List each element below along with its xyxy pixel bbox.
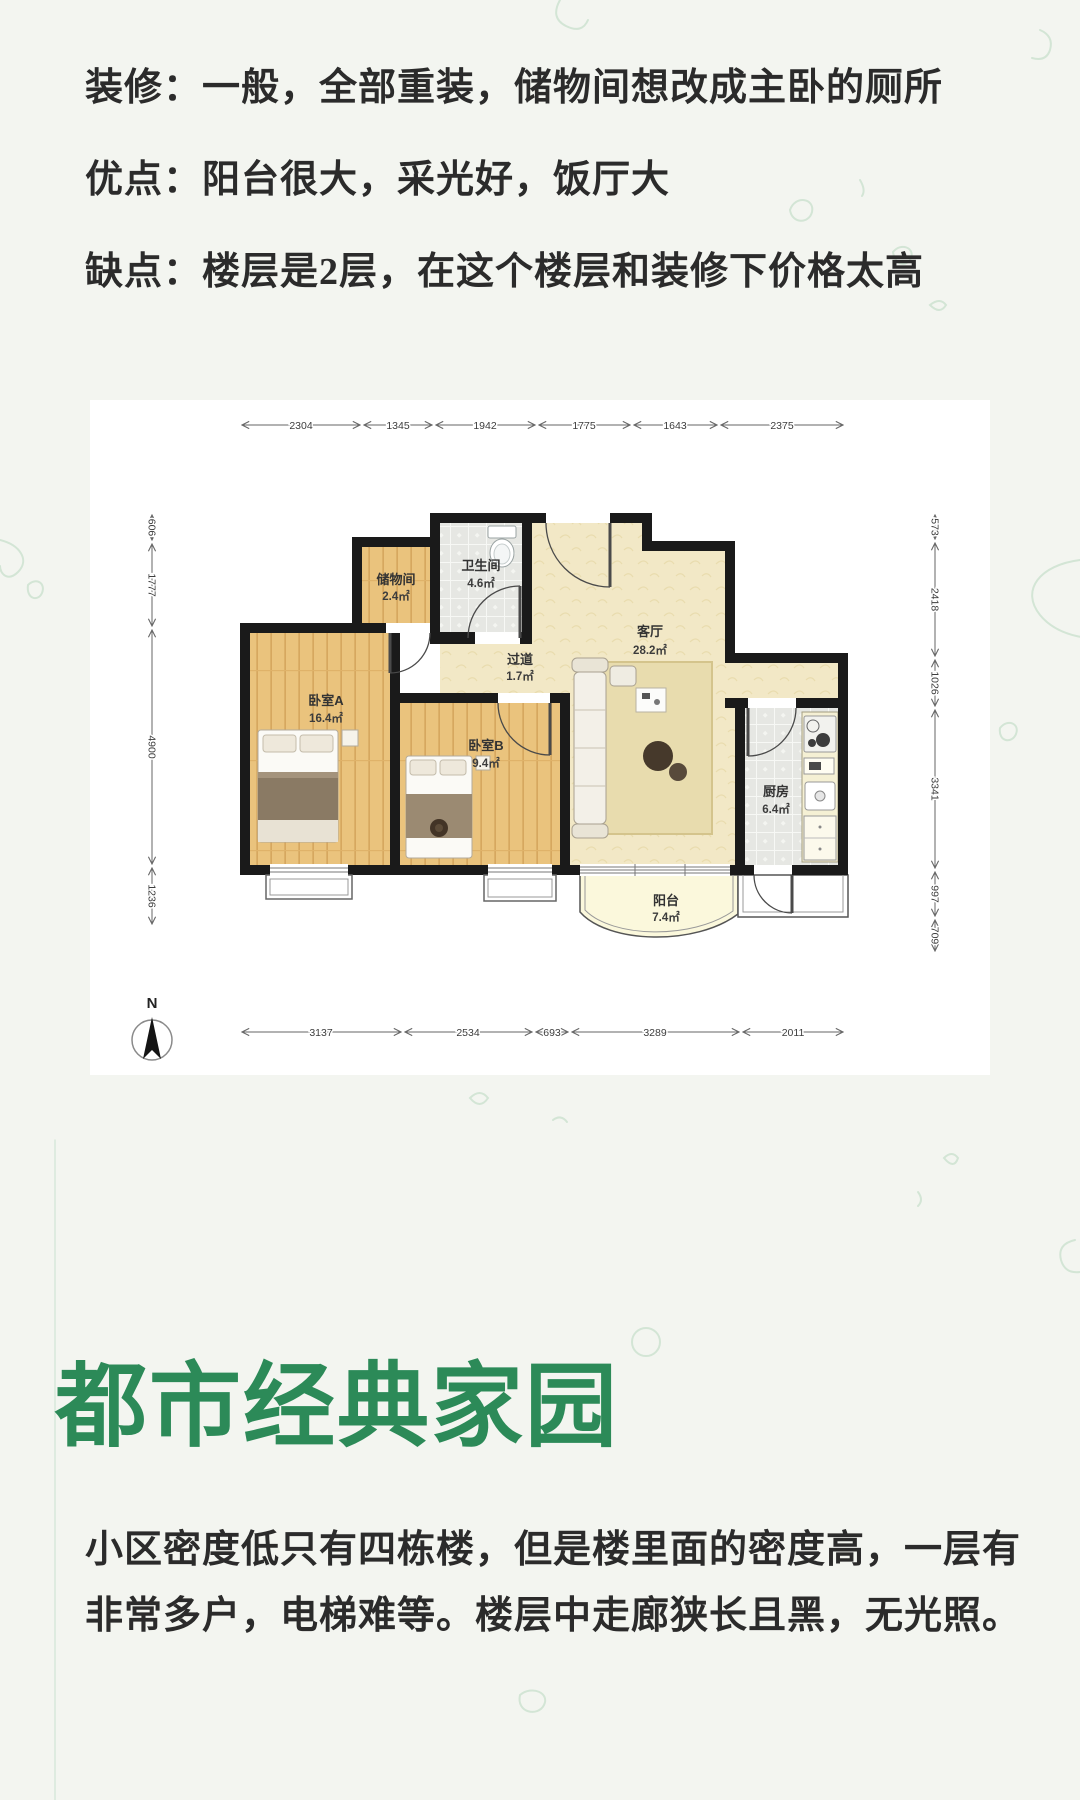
dimensions-right: 573 2418 1026 3341 997 709 <box>929 515 941 951</box>
svg-text:1775: 1775 <box>572 420 596 432</box>
svg-text:3137: 3137 <box>309 1027 333 1039</box>
svg-text:阳台: 阳台 <box>653 893 679 908</box>
svg-text:28.2㎡: 28.2㎡ <box>633 643 667 657</box>
svg-text:N: N <box>147 995 158 1012</box>
svg-text:1643: 1643 <box>663 420 687 432</box>
community-review-line-1: 小区密度低只有四栋楼，但是楼里面的密度高，一层有 <box>85 1518 1021 1573</box>
svg-text:2375: 2375 <box>770 420 794 432</box>
svg-text:1.7㎡: 1.7㎡ <box>506 669 534 683</box>
svg-text:4.6㎡: 4.6㎡ <box>467 576 495 590</box>
kitchen-counter <box>802 712 838 862</box>
balcony-sliding-door <box>580 864 730 876</box>
svg-text:6.4㎡: 6.4㎡ <box>762 802 790 816</box>
svg-text:卧室B: 卧室B <box>468 738 503 753</box>
svg-text:1236: 1236 <box>146 884 158 908</box>
svg-text:过道: 过道 <box>507 652 533 667</box>
svg-text:客厅: 客厅 <box>637 624 663 639</box>
svg-text:2304: 2304 <box>289 420 313 432</box>
svg-text:16.4㎡: 16.4㎡ <box>309 711 343 725</box>
north-compass-icon: N <box>132 995 172 1060</box>
dimensions-bottom: 3137 2534 693 3289 2011 <box>242 1027 843 1039</box>
svg-text:2418: 2418 <box>929 588 941 612</box>
svg-text:3341: 3341 <box>929 777 941 801</box>
svg-text:9.4㎡: 9.4㎡ <box>472 756 500 770</box>
window-bedroom-b <box>484 864 556 901</box>
svg-text:1777: 1777 <box>146 573 158 597</box>
sofa-set <box>572 658 712 838</box>
note-cons: 缺点：楼层是2层，在这个楼层和装修下价格太高 <box>85 240 924 295</box>
svg-text:3289: 3289 <box>643 1027 667 1039</box>
svg-text:2534: 2534 <box>456 1027 480 1039</box>
page: 装修：一般，全部重装，储物间想改成主卧的厕所 优点：阳台很大，采光好，饭厅大 缺… <box>0 0 1080 1800</box>
svg-text:1942: 1942 <box>473 420 497 432</box>
svg-text:4900: 4900 <box>146 735 158 759</box>
svg-text:1026: 1026 <box>929 671 941 695</box>
svg-text:693: 693 <box>543 1027 561 1039</box>
svg-text:厨房: 厨房 <box>763 784 789 799</box>
dimensions-top: 2304 1345 1942 1775 1643 2375 <box>242 420 843 432</box>
community-review-line-2: 非常多户，电梯难等。楼层中走廊狭长且黑，无光照。 <box>85 1584 1021 1639</box>
note-pros: 优点：阳台很大，采光好，饭厅大 <box>85 148 670 203</box>
floorplan-svg: 储物间 2.4㎡ 卫生间 4.6㎡ 过道 1.7㎡ 客厅 28.2㎡ 卧室A <box>90 400 990 1075</box>
svg-text:2011: 2011 <box>782 1027 805 1039</box>
svg-text:7.4㎡: 7.4㎡ <box>652 910 680 924</box>
svg-text:709: 709 <box>929 927 941 945</box>
svg-text:997: 997 <box>929 885 941 903</box>
bay-window-bedroom-a <box>266 864 352 899</box>
svg-text:储物间: 储物间 <box>375 572 415 587</box>
svg-text:1345: 1345 <box>386 420 410 432</box>
svg-text:卧室A: 卧室A <box>308 693 344 708</box>
svg-text:573: 573 <box>929 518 941 536</box>
floorplan-panel: 储物间 2.4㎡ 卫生间 4.6㎡ 过道 1.7㎡ 客厅 28.2㎡ 卧室A <box>90 400 990 1075</box>
note-renovation: 装修：一般，全部重装，储物间想改成主卧的厕所 <box>85 56 943 111</box>
svg-text:卫生间: 卫生间 <box>461 558 500 573</box>
community-name-title: 都市经典家园 <box>55 1332 619 1465</box>
dimensions-left: 606 1777 4900 1236 <box>146 515 158 924</box>
svg-text:2.4㎡: 2.4㎡ <box>382 589 410 603</box>
svg-text:606: 606 <box>146 519 158 537</box>
